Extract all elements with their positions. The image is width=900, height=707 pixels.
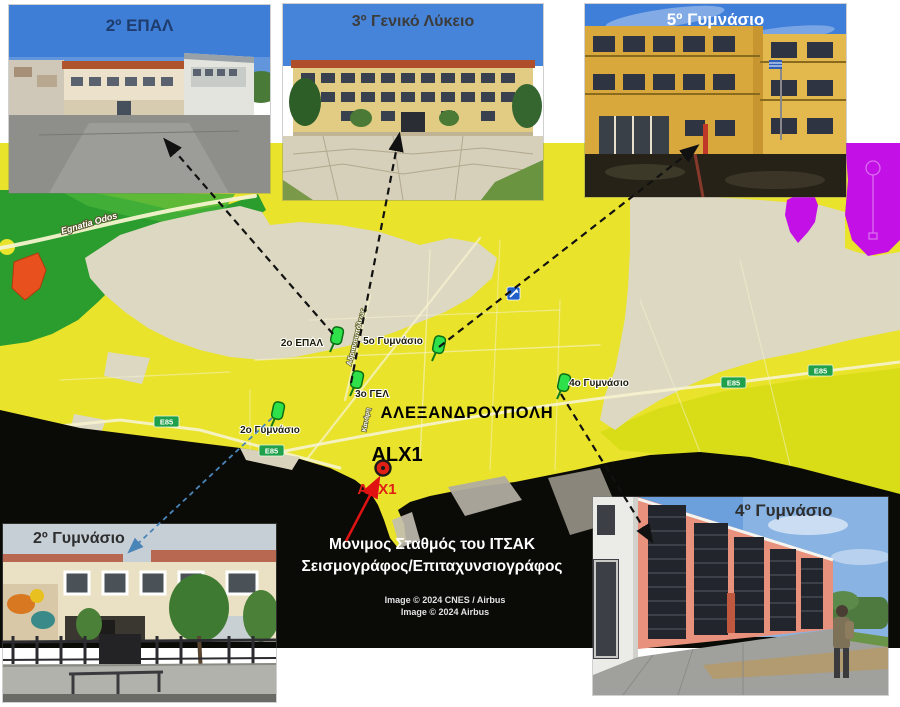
imagery-attribution: Image © 2024 CNES / Airbus Image © 2024 … bbox=[330, 594, 560, 618]
station-caption-line2: Σεισμογράφος/Επιταχυνσιογράφος bbox=[272, 556, 592, 578]
e85-badge-3: E85 bbox=[721, 377, 746, 388]
station-caption-line1: Μόνιμος Σταθμός του ΙΤΣΑΚ bbox=[272, 534, 592, 556]
station-label-red: ΑΛΧ1 bbox=[357, 481, 396, 498]
e85-badge-2: E85 bbox=[259, 445, 284, 456]
photo-epal2-label: 2º ΕΠΑΛ bbox=[9, 16, 270, 36]
station-caption: Μόνιμος Σταθμός του ΙΤΣΑΚ Σεισμογράφος/Ε… bbox=[272, 534, 592, 579]
city-label: ΑΛΕΞΑΝΔΡΟΥΠΟΛΗ bbox=[380, 404, 553, 422]
pin-label-gym2: 2ο Γυμνάσιο bbox=[240, 425, 300, 436]
attribution-line1: Image © 2024 CNES / Airbus bbox=[330, 594, 560, 606]
svg-text:E85: E85 bbox=[727, 379, 740, 388]
pin-label-gel3: 3ο ΓΕΛ bbox=[355, 389, 389, 400]
station-marker bbox=[376, 461, 391, 476]
figure-canvas: Egnatia Odos Αδριανουπόλεως Κανάρη E85 E… bbox=[0, 0, 900, 707]
e85-badge-1: E85 bbox=[154, 416, 179, 427]
e85-badge-4: E85 bbox=[808, 365, 833, 376]
photo-gym2: 2º Γυμνάσιο bbox=[3, 524, 276, 702]
pin-label-gym4: 4ο Γυμνάσιο bbox=[569, 378, 629, 389]
svg-text:E85: E85 bbox=[814, 367, 827, 376]
photo-gym4: 4º Γυμνάσιο bbox=[593, 497, 888, 695]
attribution-line2: Image © 2024 Airbus bbox=[330, 606, 560, 618]
photo-lykeio3-label: 3º Γενικό Λύκειο bbox=[283, 13, 543, 31]
svg-text:E85: E85 bbox=[160, 418, 173, 427]
svg-text:E85: E85 bbox=[265, 447, 278, 456]
photo-gym5: 5º Γυμνάσιο bbox=[585, 4, 846, 197]
photo-lykeio3: 3º Γενικό Λύκειο bbox=[283, 4, 543, 200]
photo-lykeio3-image bbox=[283, 4, 543, 200]
blue-roadsign-icon bbox=[507, 287, 520, 300]
photo-gym2-label: 2º Γυμνάσιο bbox=[33, 530, 125, 548]
photo-epal2: 2º ΕΠΑΛ bbox=[9, 5, 270, 193]
pin-label-epal2: 2ο ΕΠΑΛ bbox=[281, 338, 324, 349]
photo-gym4-label: 4º Γυμνάσιο bbox=[735, 501, 833, 521]
photo-gym5-label: 5º Γυμνάσιο bbox=[585, 10, 846, 30]
photo-gym5-image bbox=[585, 4, 846, 197]
photo-gym2-image bbox=[3, 524, 276, 702]
photo-gym4-image bbox=[593, 497, 888, 695]
pin-label-gym5: 5ο Γυμνάσιο bbox=[363, 336, 423, 347]
